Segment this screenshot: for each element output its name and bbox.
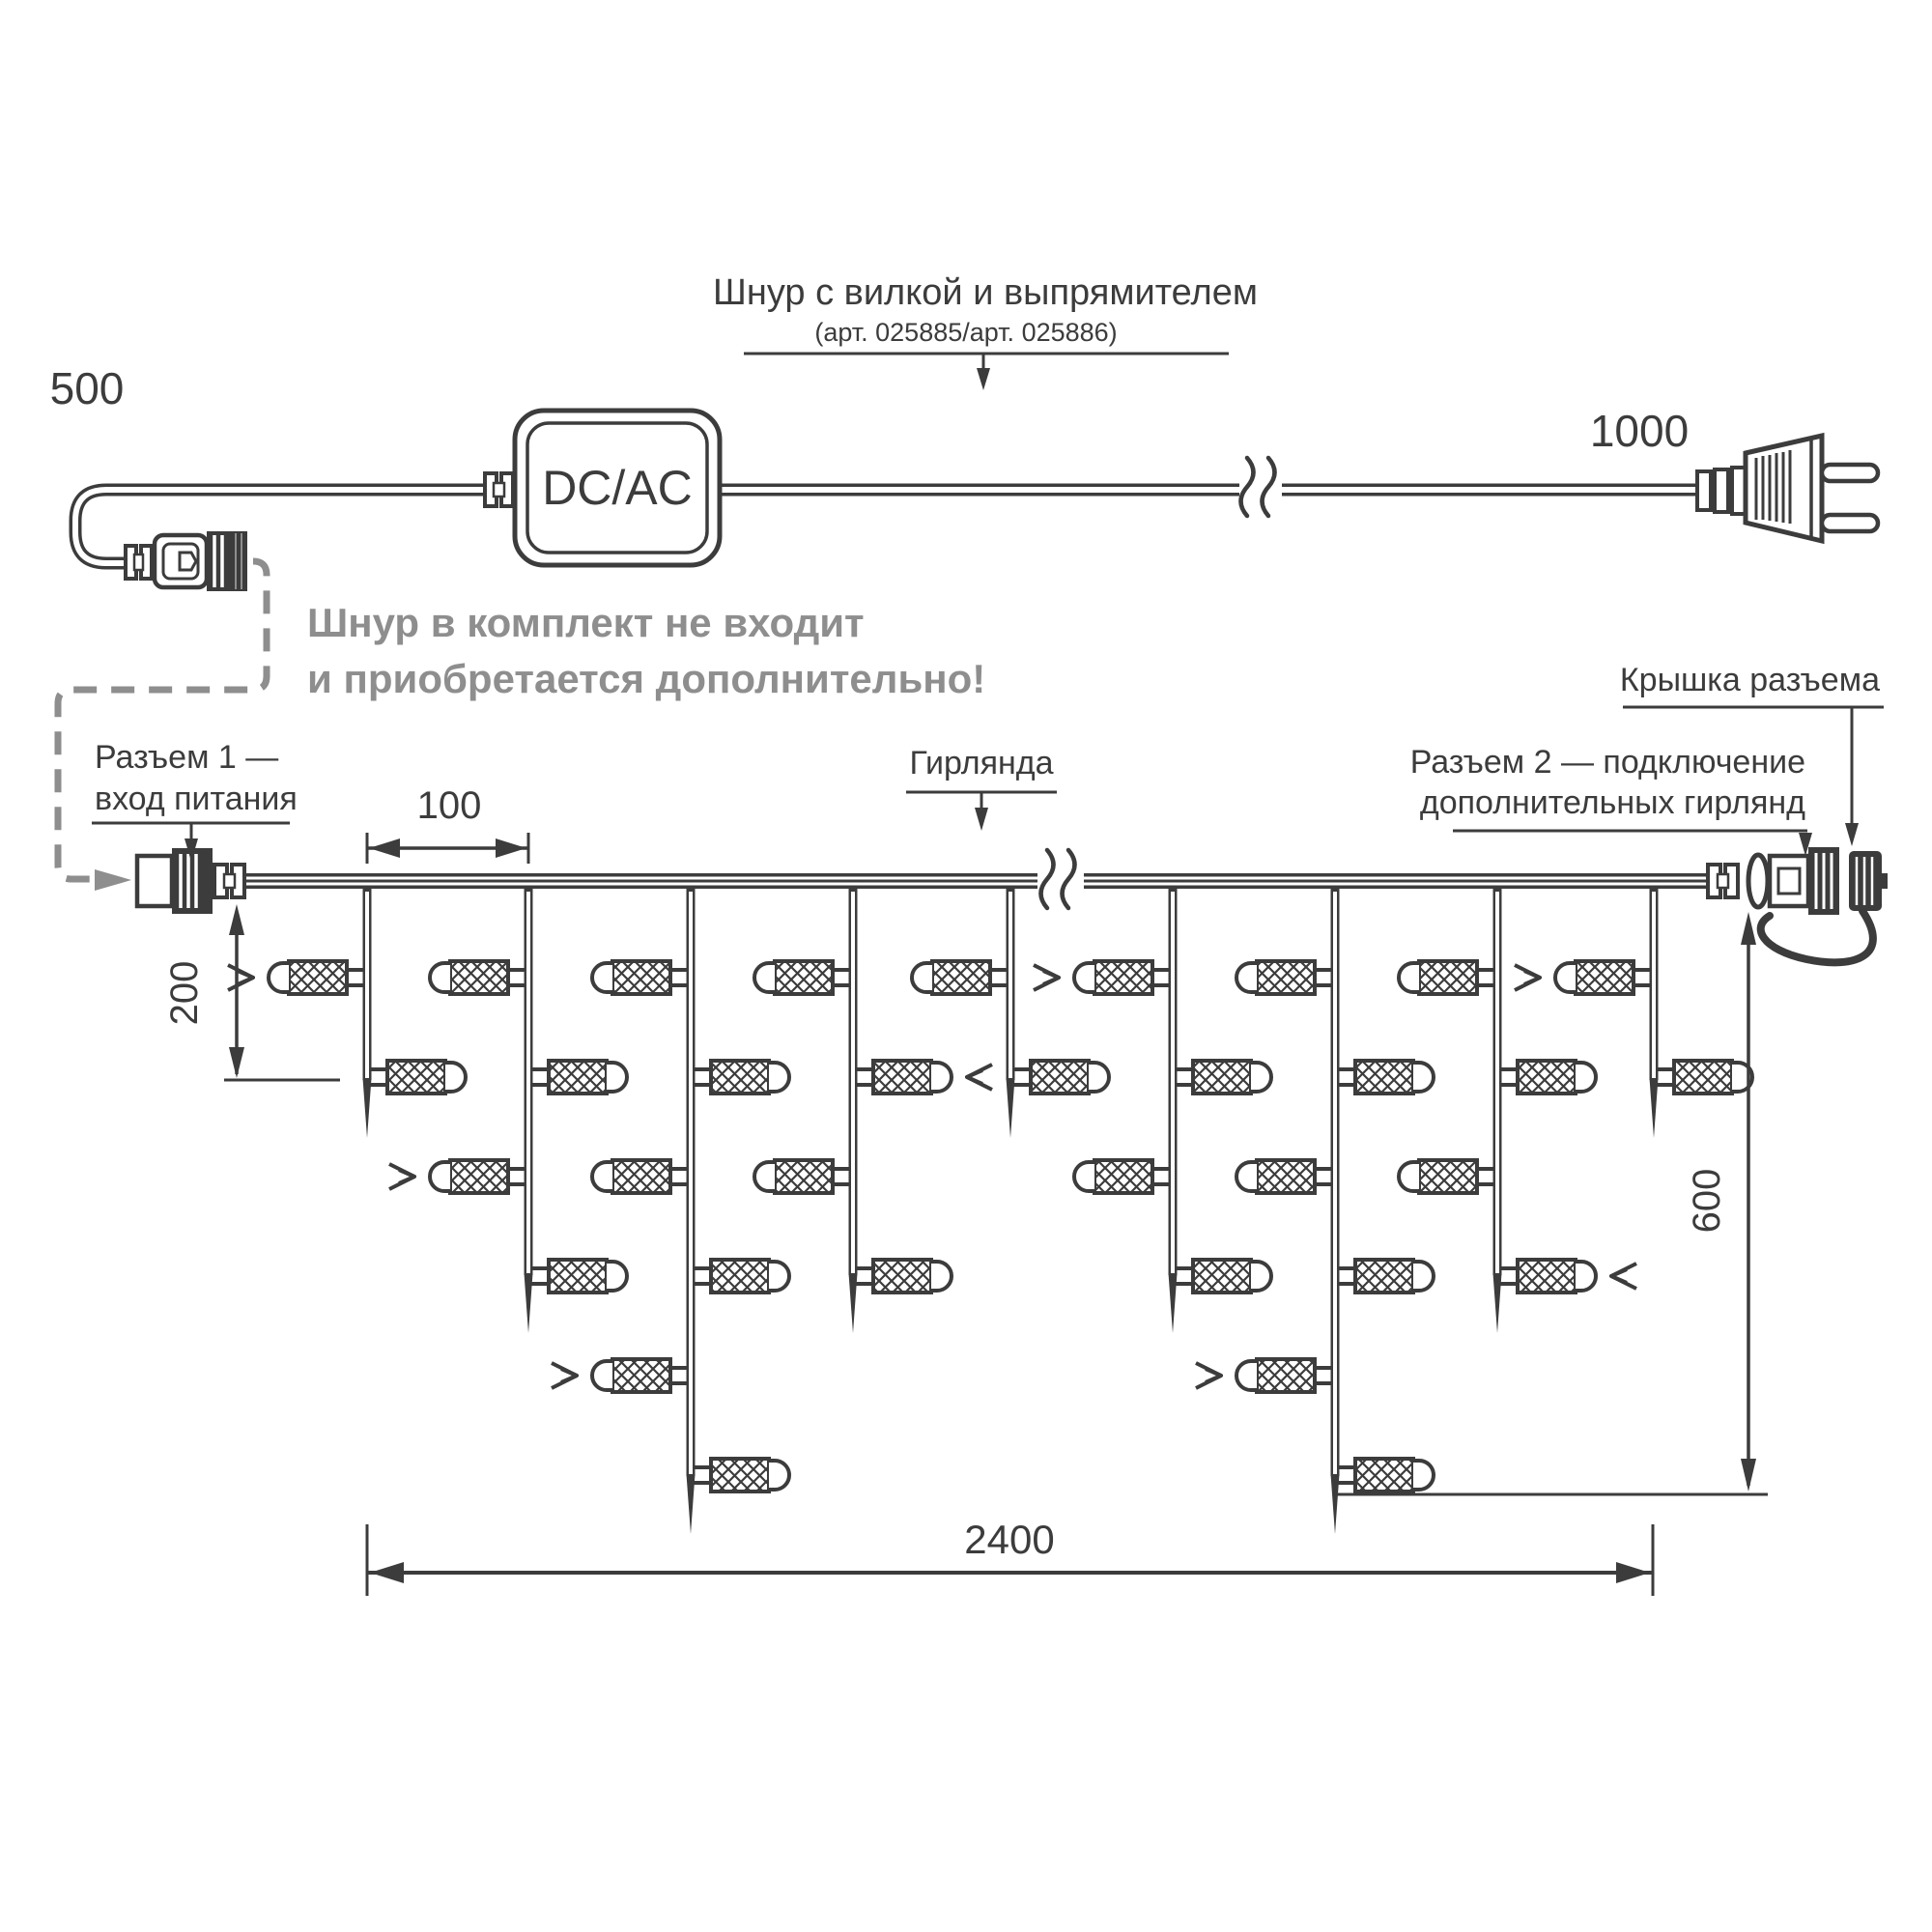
bulb-cap — [931, 1063, 952, 1092]
dim-200-label: 200 — [163, 961, 206, 1026]
led-bulb — [1500, 1061, 1596, 1094]
drop-tip — [1650, 1078, 1659, 1138]
light-direction-mark — [389, 1164, 414, 1189]
led-bulb — [1399, 1160, 1494, 1193]
icicle-drop-3 — [552, 888, 789, 1534]
garland-assembly: Разъем 1 — вход питания Гирлянда Крышка … — [92, 662, 1888, 1596]
bulb-cap — [1089, 1063, 1109, 1092]
not-included-dashed-path — [58, 561, 267, 879]
led-bulb — [552, 1359, 688, 1392]
dim-100-label: 100 — [417, 784, 482, 827]
led-bulb — [1338, 1061, 1434, 1094]
connector2-label-line2: дополнительных гирлянд — [1420, 784, 1805, 821]
connector2-label-line1: Разъем 2 — подключение — [1410, 744, 1805, 781]
led-bulb — [694, 1260, 789, 1293]
bulb-cap — [912, 963, 932, 992]
bulb-cap — [430, 963, 450, 992]
plug-pin-top — [1822, 465, 1878, 481]
led-bulb — [1236, 1160, 1332, 1193]
product-diagram: Шнур с вилкой и выпрямителем (арт. 02588… — [0, 0, 1932, 1932]
led-bulb — [694, 1061, 789, 1094]
cap-label-text: Крышка разъема — [1620, 662, 1880, 698]
light-direction-mark — [1196, 1363, 1221, 1388]
bulb-cap — [592, 1361, 612, 1390]
bulb-cap — [1251, 1262, 1271, 1291]
bulb-cap — [269, 963, 289, 992]
bulb-cap — [769, 1063, 789, 1092]
led-bulb — [754, 961, 850, 994]
plug-pin-bottom — [1822, 515, 1878, 531]
icicle-drop-9 — [1515, 888, 1752, 1138]
dim-100: 100 — [367, 784, 528, 864]
led-bulb — [1196, 1359, 1332, 1392]
led-bulb — [1338, 1260, 1434, 1293]
led-bulb — [1074, 1160, 1170, 1193]
adapter-label: DC/AC — [542, 461, 693, 515]
led-bulb — [1176, 1061, 1271, 1094]
bulb-cap — [1576, 1262, 1596, 1291]
cord-break-symbol — [1239, 458, 1282, 520]
light-direction-mark — [1515, 965, 1540, 990]
bulb-cap — [592, 963, 612, 992]
drops-layer — [228, 888, 1752, 1534]
bulb-cap — [769, 1262, 789, 1291]
icicle-drop-4 — [754, 888, 992, 1333]
note-line1: Шнур в комплект не входит — [307, 600, 865, 645]
connector2-ring — [1748, 855, 1768, 907]
connector2-label: Разъем 2 — подключение дополнительных ги… — [1410, 744, 1812, 856]
led-bulb — [370, 1061, 466, 1094]
garland-label: Гирлянда — [906, 745, 1057, 831]
bulb-cap — [1236, 1162, 1257, 1191]
not-included-arrow — [95, 869, 131, 891]
dim-600: 600 — [1333, 912, 1768, 1494]
connector2-extension — [1708, 847, 1888, 962]
led-bulb — [592, 1160, 688, 1193]
dc-ac-adapter: DC/AC — [485, 411, 720, 565]
dim-500-label: 500 — [50, 363, 125, 413]
dim-1000-label: 1000 — [1590, 406, 1689, 456]
cord-subtitle: (арт. 025885/арт. 025886) — [814, 318, 1117, 347]
led-bulb — [1515, 961, 1651, 994]
icicle-drop-8 — [1399, 888, 1636, 1333]
bulb-cap — [1413, 1063, 1434, 1092]
cord-title: Шнур с вилкой и выпрямителем — [713, 272, 1258, 313]
bulb-cap — [1399, 1162, 1419, 1191]
dim-2400: 2400 — [367, 1517, 1653, 1596]
led-bulb — [1236, 961, 1332, 994]
diagram-svg: Шнур с вилкой и выпрямителем (арт. 02588… — [0, 0, 1932, 1932]
icicle-drop-5 — [912, 888, 1109, 1138]
icicle-drop-1 — [228, 888, 466, 1138]
bulb-cap — [607, 1262, 627, 1291]
bulb-cap — [769, 1461, 789, 1490]
connector1-label-line2: вход питания — [95, 781, 298, 817]
bulb-cap — [1236, 963, 1257, 992]
light-direction-mark — [1611, 1264, 1636, 1289]
drop-tip — [363, 1078, 372, 1138]
led-bulb — [1034, 961, 1170, 994]
dim-2400-label: 2400 — [964, 1517, 1054, 1562]
bulb-cap — [592, 1162, 612, 1191]
light-direction-mark — [228, 965, 253, 990]
led-bulb — [531, 1061, 627, 1094]
bulb-cap — [445, 1063, 466, 1092]
bulb-cap — [1074, 963, 1094, 992]
bulb-cap — [1236, 1361, 1257, 1390]
icicle-drop-2 — [389, 888, 627, 1333]
led-bulb — [592, 961, 688, 994]
led-bulb — [1338, 1459, 1434, 1492]
led-bulb — [694, 1459, 789, 1492]
note-line2: и приобретается дополнительно! — [307, 656, 985, 701]
bulb-cap — [1251, 1063, 1271, 1092]
led-bulb — [1399, 961, 1494, 994]
bulb-cap — [1399, 963, 1419, 992]
garland-label-text: Гирлянда — [909, 745, 1053, 781]
bulb-cap — [1576, 1063, 1596, 1092]
cap-tether — [1761, 911, 1873, 962]
led-bulb — [754, 1160, 850, 1193]
led-bulb — [856, 1260, 952, 1293]
led-bulb — [1176, 1260, 1271, 1293]
europlug — [1697, 436, 1878, 541]
bulb-cap — [754, 1162, 775, 1191]
cord-title-arrow — [977, 368, 990, 390]
led-bulb — [856, 1061, 992, 1094]
drop-tip — [1007, 1078, 1015, 1138]
dim-600-label: 600 — [1686, 1169, 1728, 1234]
led-bulb — [228, 961, 364, 994]
led-bulb — [912, 961, 1008, 994]
led-bulb — [389, 1160, 526, 1193]
led-bulb — [1657, 1061, 1752, 1094]
bulb-cap — [931, 1262, 952, 1291]
connector1-label-line1: Разъем 1 — — [95, 739, 278, 776]
bulb-cap — [1413, 1461, 1434, 1490]
bulb-cap — [1555, 963, 1576, 992]
icicle-drop-7 — [1196, 888, 1434, 1534]
bulb-cap — [430, 1162, 450, 1191]
bulb-cap — [1413, 1262, 1434, 1291]
connector-cap — [1849, 851, 1888, 911]
bulb-cap — [754, 963, 775, 992]
led-bulb — [1013, 1061, 1109, 1094]
led-bulb — [1500, 1260, 1636, 1293]
cord-male-connector — [126, 531, 247, 591]
connector1-label: Разъем 1 — вход питания — [92, 739, 298, 862]
led-bulb — [430, 961, 526, 994]
light-direction-mark — [552, 1363, 577, 1388]
bulb-cap — [607, 1063, 627, 1092]
light-direction-mark — [1034, 965, 1059, 990]
led-bulb — [531, 1260, 627, 1293]
light-direction-mark — [967, 1065, 992, 1090]
bulb-cap — [1074, 1162, 1094, 1191]
icicle-drop-6 — [1034, 888, 1271, 1333]
garland-break-symbol — [1037, 850, 1084, 910]
